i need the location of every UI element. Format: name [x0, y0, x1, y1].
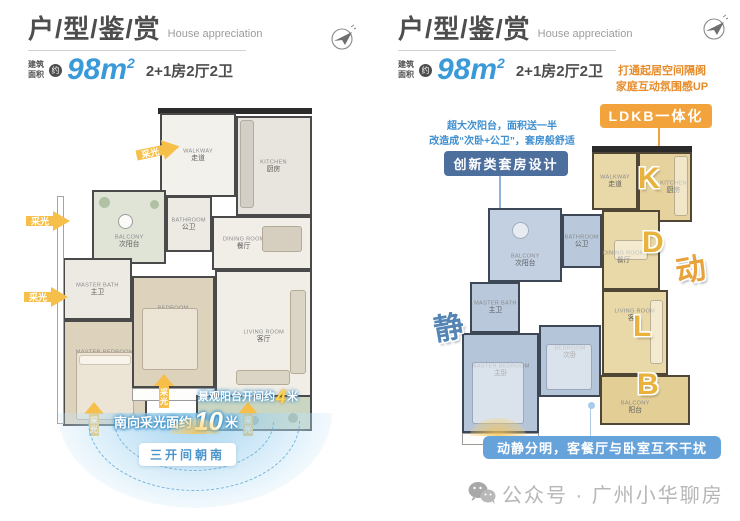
bed-icon: [546, 344, 592, 390]
kitchen-counter: [240, 120, 254, 208]
right-header: 户/型/鉴/赏 House appreciation: [398, 16, 632, 42]
room-bathroom: BATHROOM公卫: [562, 214, 602, 268]
dining-table: [262, 226, 302, 252]
daylight-label: 采: [159, 387, 169, 397]
bed-icon: [472, 362, 524, 424]
balcony-width-note: 景观阳台开间约4米: [198, 388, 298, 405]
right-area-row: 建筑面积 约 98m2 2+1房2厅2卫: [398, 55, 603, 85]
sofa-icon: [650, 300, 663, 364]
zone-letter-d: D: [642, 228, 664, 258]
wechat-account: 公众号 · 广州小华聊房: [502, 479, 724, 508]
page-subtitle: House appreciation: [168, 28, 263, 42]
plant-icon: [150, 200, 159, 209]
bottom-badge-dot: [587, 401, 596, 410]
suite-callout-text: 超大次阳台，面积送一半改造成“次卧+公卫”，套房般舒适: [418, 120, 586, 149]
dynamic-zone-char: 动: [674, 254, 709, 289]
room-bathroom: BATHROOM公卫: [166, 196, 212, 252]
daylight-label: 采光: [30, 216, 49, 227]
zoning-badge: 动静分明，客餐厅与卧室互不干扰: [483, 436, 721, 459]
left-area-row: 建筑面积 约 98m2 2+1房2厅2卫: [28, 55, 233, 85]
washer-icon: [512, 222, 529, 239]
layout-spec: 2+1房2厅2卫: [516, 60, 603, 81]
zone-letter-k: K: [638, 164, 660, 194]
static-zone-char: 静: [432, 312, 467, 347]
ldkb-callout-text: 打通起居空间隔阂家庭互动氛围感UP: [592, 64, 732, 96]
paper-plane-icon: [328, 22, 358, 52]
plant-icon: [99, 197, 110, 208]
room-master-bath: MASTER BATH主卫: [63, 258, 132, 320]
area-label: 建筑面积: [28, 60, 44, 79]
layout-spec: 2+1房2厅2卫: [146, 60, 233, 81]
area-value: 98m2: [437, 55, 505, 85]
property-poster: 户/型/鉴/赏 House appreciation 建筑面积 约 98m2 2…: [0, 0, 740, 521]
kitchen-counter: [674, 156, 688, 216]
page-title: 户/型/鉴/赏: [28, 16, 161, 42]
page-title: 户/型/鉴/赏: [398, 16, 531, 42]
bed-icon: [142, 308, 198, 370]
left-header: 户/型/鉴/赏 House appreciation: [28, 16, 262, 42]
daylight-label: 光: [159, 396, 168, 406]
orientation-pill: 三开间朝南: [139, 443, 236, 466]
daylight-label: 采光: [139, 145, 160, 160]
approx-badge: 约: [419, 64, 432, 77]
sofa-icon: [236, 370, 290, 385]
suite-badge: 创新类套房设计: [444, 151, 568, 176]
paper-plane-icon: [700, 12, 730, 42]
header-divider: [398, 50, 616, 51]
room-master-bath: MASTER BATH主卫: [470, 282, 520, 333]
daylight-arrow-icon: 采光: [24, 286, 68, 308]
sofa-icon: [290, 290, 306, 374]
room-walkway: WALKWAY走道: [592, 152, 638, 210]
room-balcony-north: BALCONY次阳台: [488, 208, 562, 282]
suite-leader-line: [499, 176, 501, 212]
bottom-badge-leader: [590, 408, 591, 436]
washer-icon: [118, 214, 133, 229]
ldkb-badge: LDKB一体化: [600, 104, 712, 128]
header-divider: [28, 50, 246, 51]
wechat-icon: [468, 481, 496, 505]
daylight-label: 采光: [28, 292, 47, 303]
page-subtitle: House appreciation: [538, 28, 633, 42]
pillow-icon: [79, 355, 131, 365]
daylight-arrow-icon: 采光: [26, 210, 70, 232]
daylight-arrow-icon: 采 光: [154, 374, 174, 408]
area-label: 建筑面积: [398, 60, 414, 79]
area-value: 98m2: [67, 55, 135, 85]
zone-letter-b: B: [637, 370, 659, 400]
approx-badge: 约: [49, 64, 62, 77]
zone-letter-l: L: [633, 312, 651, 342]
